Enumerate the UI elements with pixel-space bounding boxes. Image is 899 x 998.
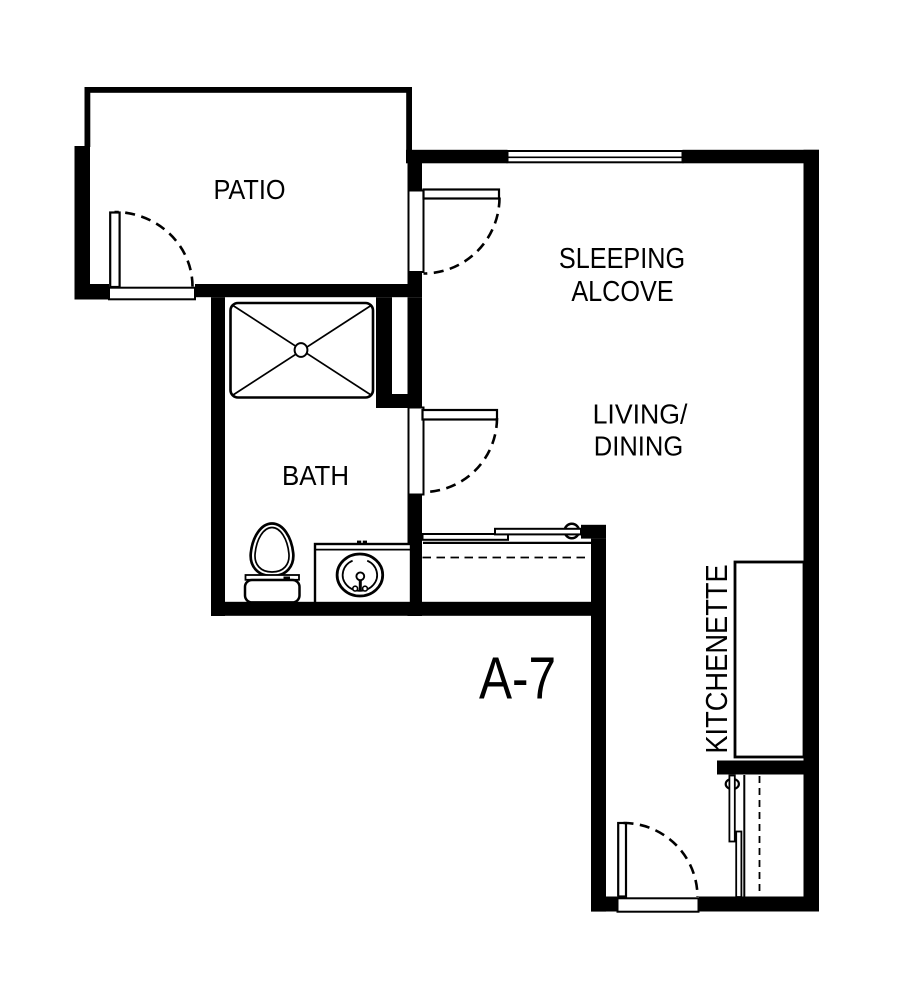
svg-text:ALCOVE: ALCOVE [571, 274, 673, 307]
svg-text:SLEEPING: SLEEPING [559, 241, 685, 274]
svg-text:PATIO: PATIO [213, 174, 285, 205]
svg-text:DINING: DINING [594, 431, 683, 462]
svg-text:A-7: A-7 [479, 645, 556, 711]
svg-text:LIVING/: LIVING/ [593, 398, 688, 429]
svg-text:BATH: BATH [282, 460, 349, 491]
svg-text:KITCHENETTE: KITCHENETTE [700, 564, 734, 753]
